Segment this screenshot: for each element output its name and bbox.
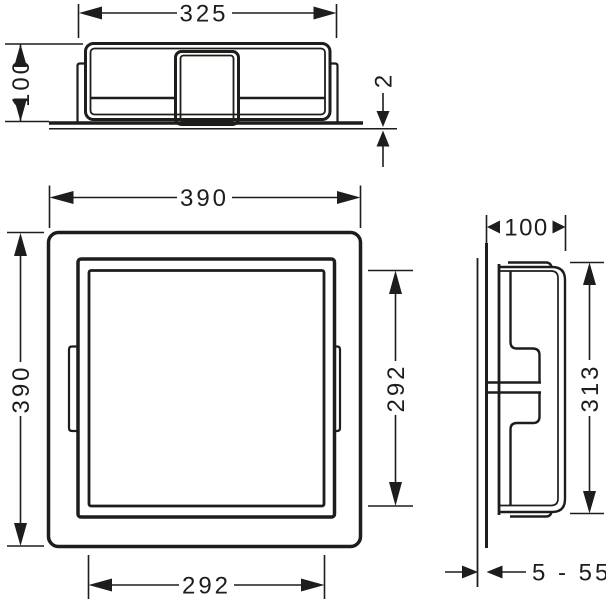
technical-drawing-canvas: 325 100 2 [0, 0, 606, 600]
dim-front-inner-width-label: 292 [182, 572, 231, 599]
dim-front-inner-height-label: 292 [383, 363, 410, 412]
dim-tile-range-label: 5 - 55 [532, 559, 606, 586]
dim-top-height-label: 100 [8, 58, 35, 107]
dim-side-depth-label: 100 [504, 214, 549, 241]
dimension-drawing: 325 100 2 [0, 0, 606, 600]
dim-flange-thickness-label: 2 [370, 72, 397, 88]
dim-front-height-label: 390 [8, 364, 35, 413]
dim-front-width-label: 390 [180, 185, 229, 212]
dim-top-width-label: 325 [179, 0, 228, 27]
dim-side-inner-height-label: 313 [577, 363, 604, 412]
